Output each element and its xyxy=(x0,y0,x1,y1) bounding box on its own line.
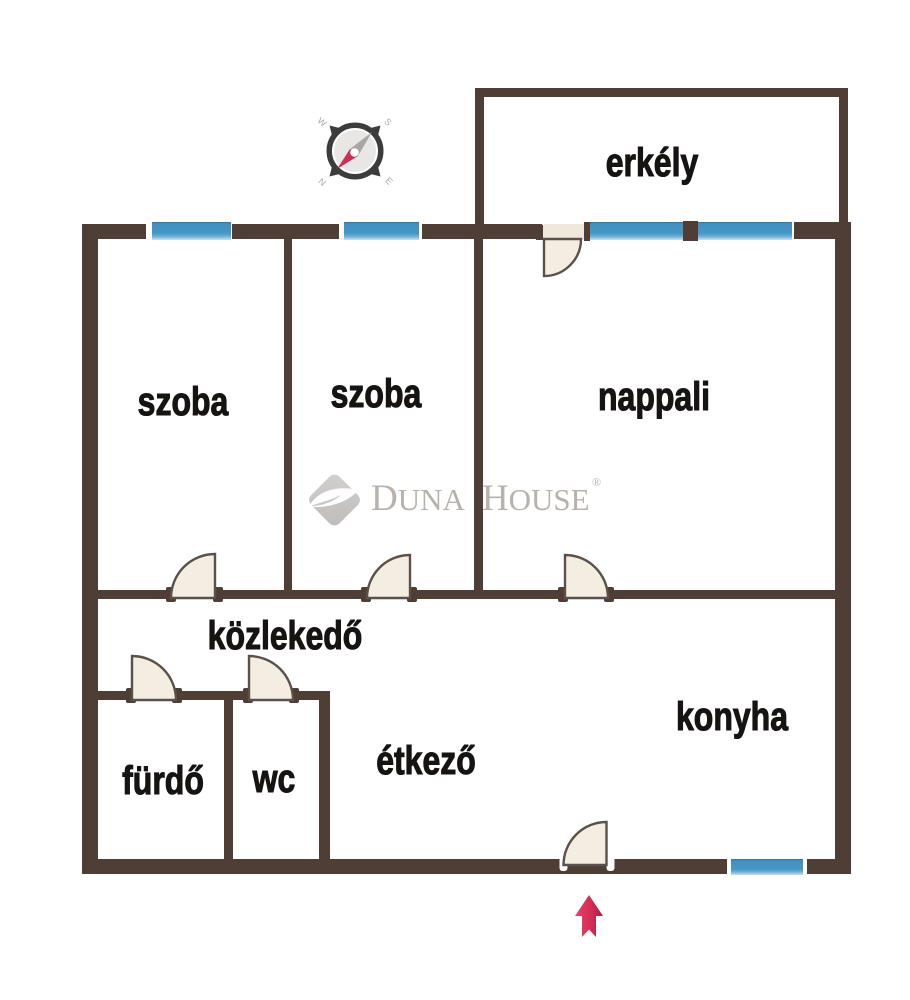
svg-text:nappali: nappali xyxy=(598,374,710,419)
svg-text:közlekedő: közlekedő xyxy=(208,613,363,658)
svg-text:®: ® xyxy=(592,475,601,489)
svg-text:szoba: szoba xyxy=(138,379,229,424)
svg-text:wc: wc xyxy=(252,756,296,801)
svg-text:szoba: szoba xyxy=(331,371,422,416)
svg-text:erkély: erkély xyxy=(606,140,699,185)
svg-text:fürdő: fürdő xyxy=(122,758,204,803)
svg-text:étkező: étkező xyxy=(376,738,476,783)
svg-text:konyha: konyha xyxy=(676,694,789,739)
